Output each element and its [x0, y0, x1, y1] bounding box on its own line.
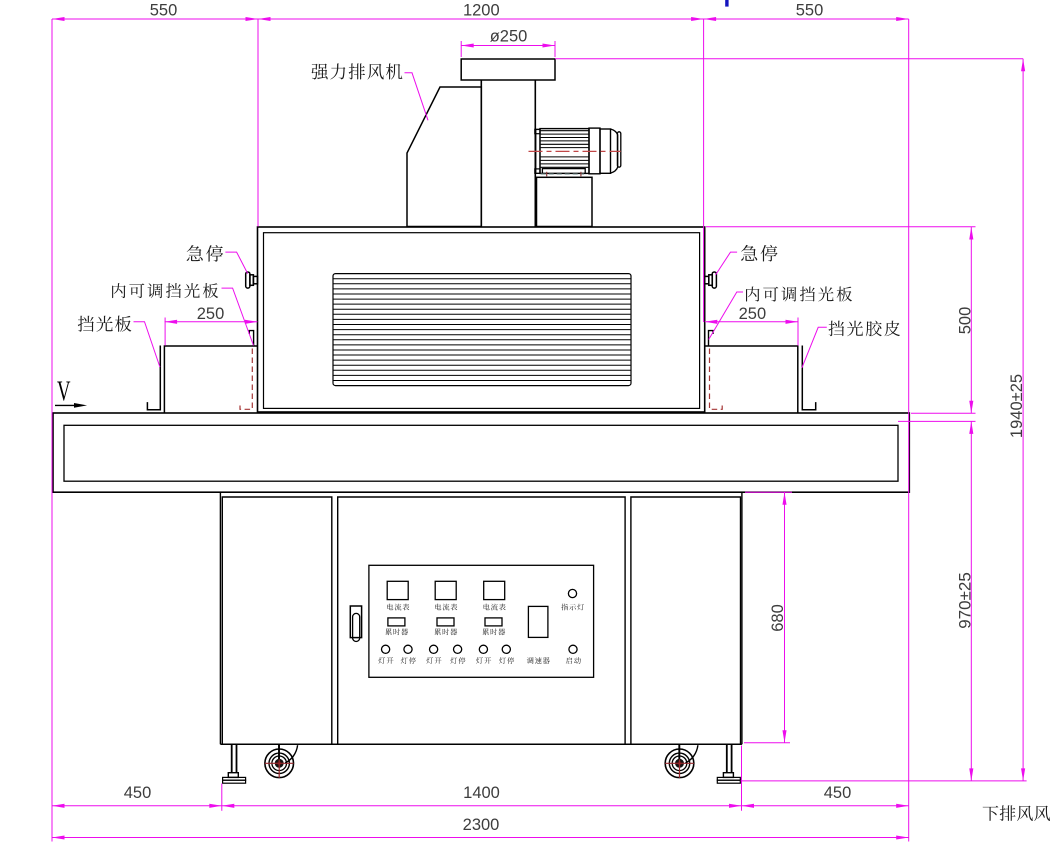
svg-text:1940±25: 1940±25 [1008, 374, 1026, 438]
svg-text:680: 680 [769, 604, 787, 632]
svg-text:250: 250 [739, 305, 767, 323]
svg-text:1400: 1400 [463, 784, 500, 802]
svg-text:2300: 2300 [463, 816, 500, 834]
svg-text:500: 500 [956, 307, 974, 335]
svg-text:ø250: ø250 [490, 28, 528, 46]
svg-text:V: V [57, 377, 71, 408]
svg-text:970±25: 970±25 [955, 572, 974, 629]
svg-text:250: 250 [197, 305, 225, 323]
svg-text:450: 450 [824, 784, 852, 802]
svg-text:550: 550 [150, 2, 178, 20]
svg-text:450: 450 [124, 784, 152, 802]
svg-text:550: 550 [796, 2, 824, 20]
svg-text:1200: 1200 [463, 2, 500, 20]
